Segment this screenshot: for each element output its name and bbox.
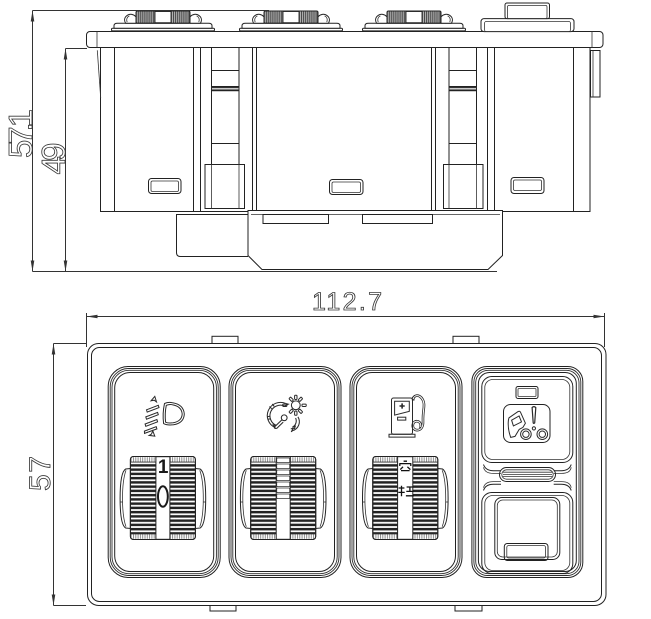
svg-text:57: 57 <box>24 456 57 491</box>
svg-text:1: 1 <box>158 457 169 478</box>
svg-text:112.7: 112.7 <box>312 288 382 316</box>
svg-text:57.1: 57.1 <box>2 109 39 158</box>
svg-text:49: 49 <box>35 143 72 175</box>
